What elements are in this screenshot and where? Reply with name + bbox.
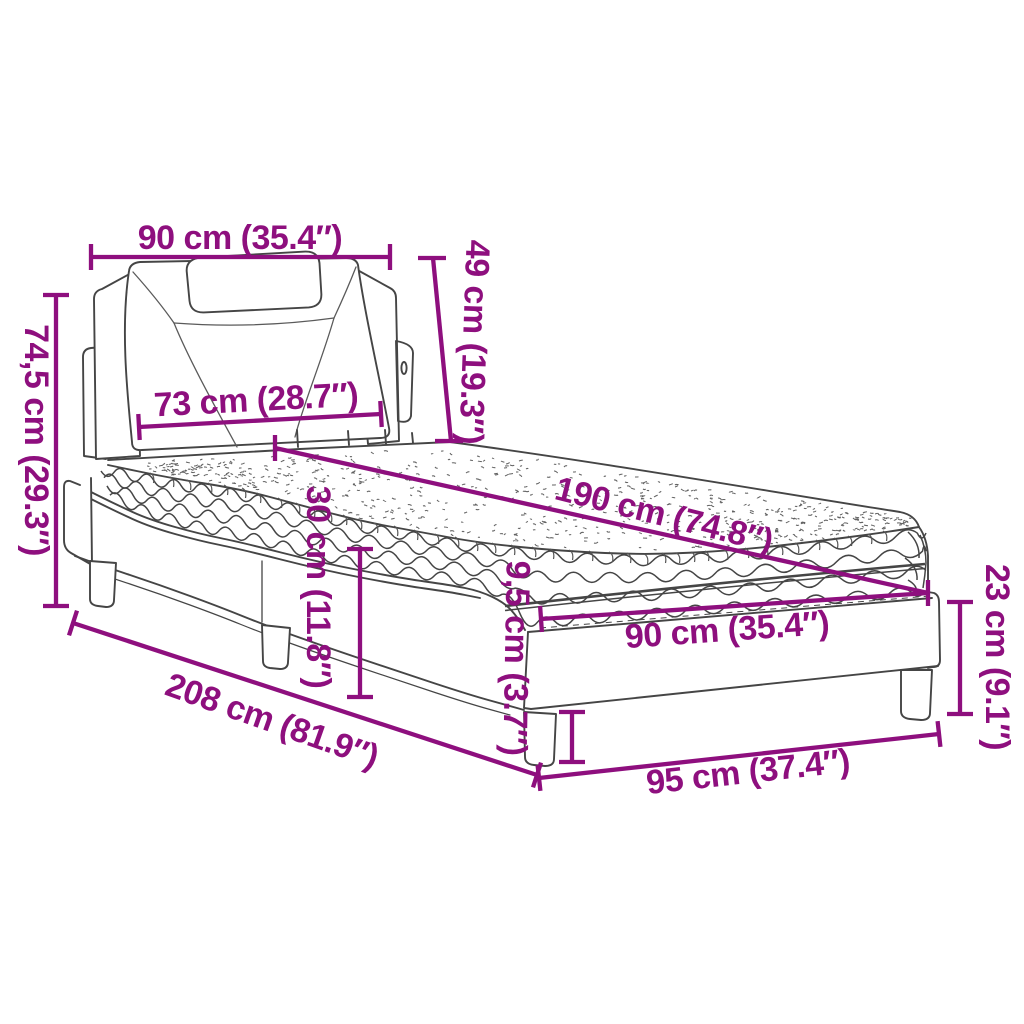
- svg-text:49 cm (19.3″): 49 cm (19.3″): [451, 239, 496, 445]
- svg-text:90 cm (35.4″): 90 cm (35.4″): [138, 219, 342, 257]
- svg-text:9,5 cm (3.7″): 9,5 cm (3.7″): [495, 560, 536, 756]
- svg-text:30 cm (11.8″): 30 cm (11.8″): [299, 486, 337, 689]
- svg-text:23 cm (9.1″): 23 cm (9.1″): [978, 564, 1016, 750]
- svg-text:74,5 cm (29.3″): 74,5 cm (29.3″): [17, 324, 55, 556]
